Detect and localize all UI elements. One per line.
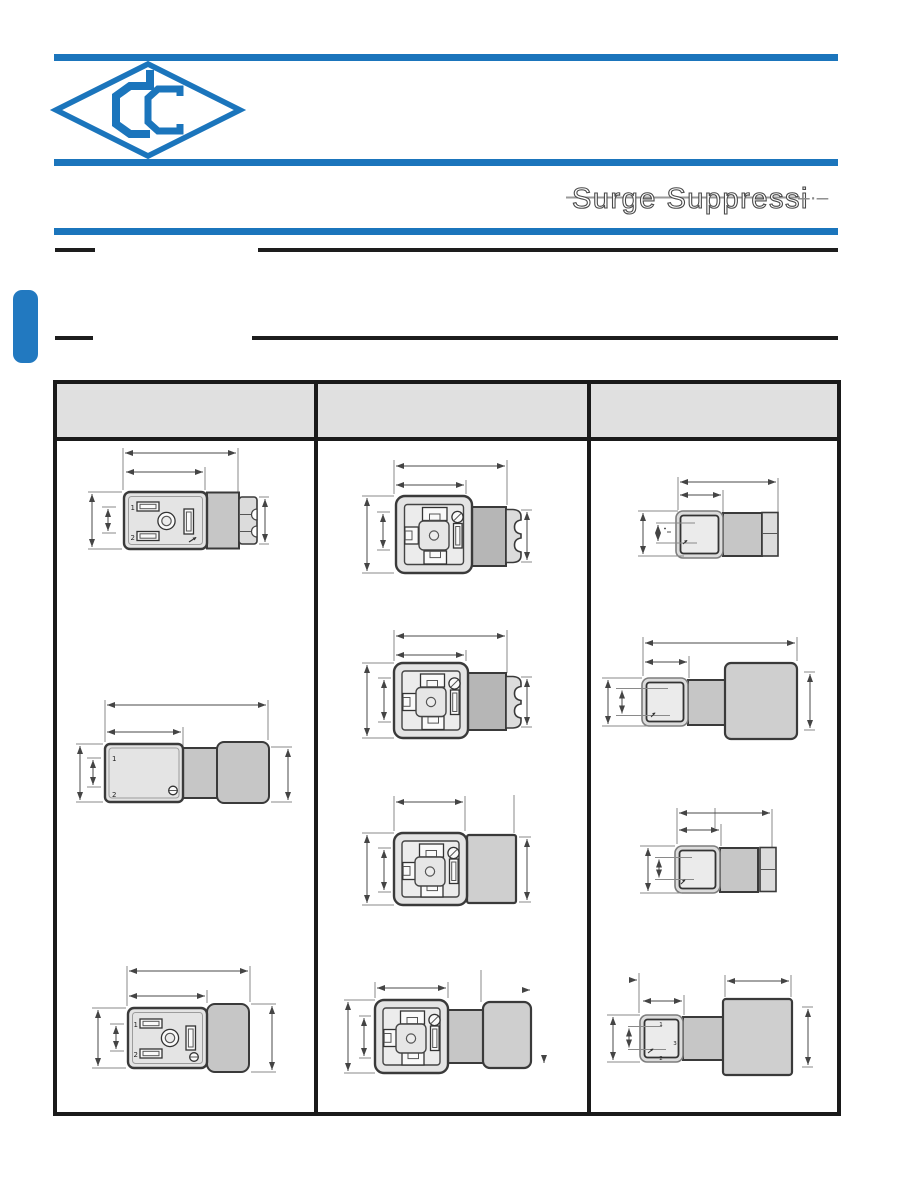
drawing-col1-row3-front-view: 1 2 (90, 958, 285, 1080)
drawing-col3-row3-side-view (632, 806, 794, 906)
lower-blue-rule (54, 228, 838, 235)
drawing-col3-row1-side-view (628, 470, 793, 570)
section-rule-left (55, 248, 95, 252)
pin-label: 3 (673, 1041, 677, 1047)
drawing-col1-row1-front-view: 1 2 (80, 443, 280, 575)
table-header-col1 (57, 384, 316, 437)
drawing-col1-row2-side-view: 1 2 (68, 686, 298, 811)
pin-label: 2 (134, 1051, 138, 1059)
title-watermark: Surge Suppressi –·– (555, 172, 847, 220)
section-rule2-right (252, 336, 838, 340)
table-header-col3 (588, 384, 837, 437)
pin-label: 2 (131, 534, 135, 542)
drawing-col2-row4-square-front-neck-block (340, 958, 555, 1080)
pin-label: 1 (112, 755, 116, 763)
document-page: Surge Suppressi –·– (0, 0, 918, 1188)
brand-logo (53, 60, 243, 160)
drawing-col2-row1-square-front (358, 443, 543, 583)
section-rule2-left (55, 336, 93, 340)
page-title: Surge Suppressi (572, 183, 809, 215)
title-trailing-dashes: –·– (798, 186, 829, 209)
logo-letter-c2 (148, 89, 180, 131)
section-rule-right (258, 248, 838, 252)
drawing-col2-row2-square-front (358, 623, 543, 745)
pin-label: 1 (131, 504, 135, 512)
pin-label: 2 (112, 791, 116, 799)
drawing-col3-row2-side-view-block (598, 630, 820, 748)
column-divider-2 (587, 384, 591, 1112)
mid-blue-rule (54, 159, 838, 166)
pin-label: 1 (659, 1022, 663, 1028)
drawing-col3-row4-side-view-block: 1 2 3 (600, 958, 820, 1080)
table-header-col2 (316, 384, 589, 437)
drawing-col2-row3-square-front-block (358, 790, 543, 912)
pin-label: 1 (134, 1021, 138, 1029)
pin-label: 2 (659, 1056, 663, 1062)
column-divider-1 (314, 384, 318, 1112)
sidebar-tab (13, 290, 38, 363)
table-header-row (57, 384, 837, 441)
